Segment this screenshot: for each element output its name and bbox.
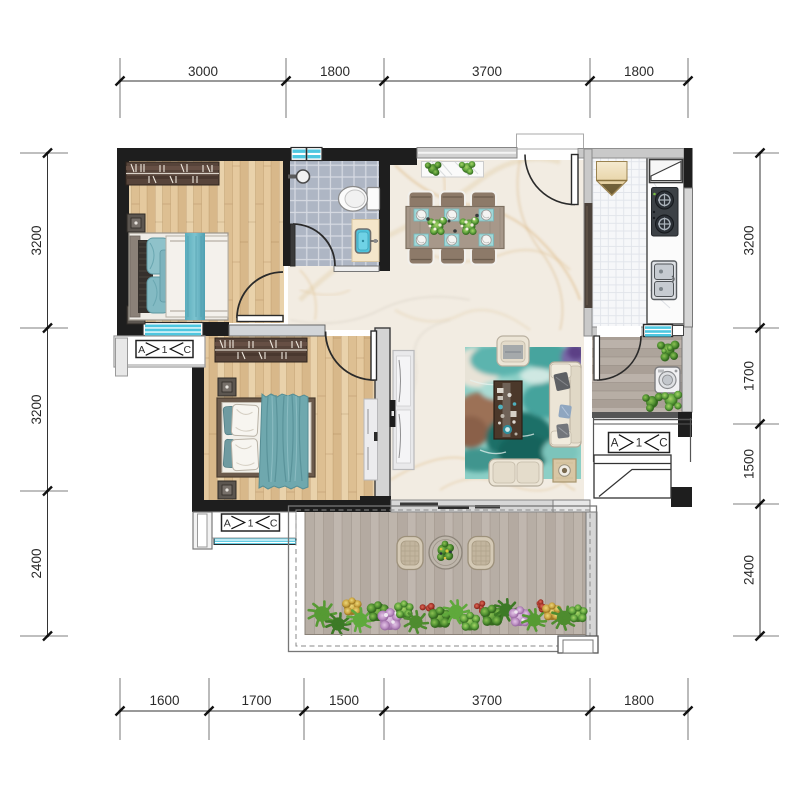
svg-text:1700: 1700 [742, 361, 757, 391]
svg-text:1700: 1700 [241, 693, 271, 708]
svg-text:1600: 1600 [149, 693, 179, 708]
svg-text:C: C [659, 438, 667, 450]
svg-text:3700: 3700 [472, 693, 502, 708]
svg-text:1: 1 [162, 344, 168, 356]
svg-text:2400: 2400 [29, 548, 44, 578]
svg-text:1500: 1500 [742, 449, 757, 479]
svg-text:A: A [138, 344, 145, 356]
svg-text:A: A [224, 517, 231, 529]
svg-text:3700: 3700 [472, 64, 502, 79]
svg-text:1500: 1500 [329, 693, 359, 708]
svg-text:A: A [611, 438, 619, 450]
svg-text:3200: 3200 [742, 225, 757, 255]
svg-text:1: 1 [248, 517, 254, 529]
svg-text:1800: 1800 [624, 693, 654, 708]
svg-text:1: 1 [636, 438, 642, 450]
svg-text:C: C [183, 344, 191, 356]
svg-text:3200: 3200 [29, 394, 44, 424]
svg-text:3200: 3200 [29, 225, 44, 255]
svg-text:2400: 2400 [742, 555, 757, 585]
svg-text:1800: 1800 [320, 64, 350, 79]
svg-text:C: C [270, 517, 278, 529]
svg-text:1800: 1800 [624, 64, 654, 79]
svg-text:3000: 3000 [188, 64, 218, 79]
